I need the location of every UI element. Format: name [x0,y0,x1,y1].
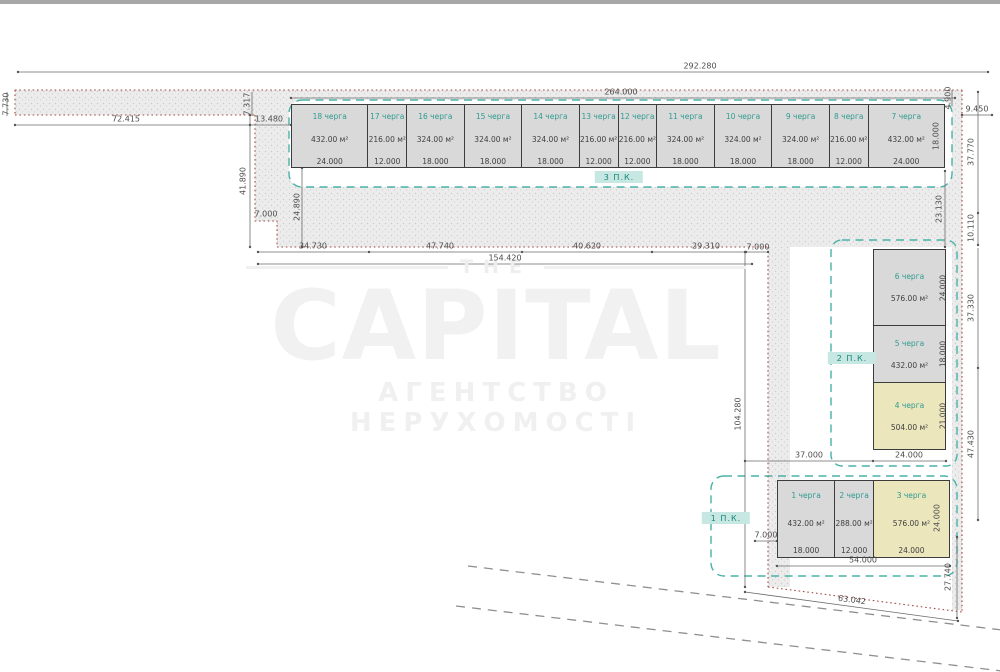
unit-cell: 9 черга324.00 м²18.000 [772,105,830,167]
unit-cell: 17 черга216.00 м²12.000 [368,105,407,167]
dim-label: 37.770 [967,138,976,166]
dim-label: 4.900 [944,87,953,110]
unit-name: 11 черга [668,112,702,121]
dim-label: 7.730 [2,93,11,116]
unit-name: 4 черга [895,401,925,410]
dim-label: 47.430 [967,430,976,458]
unit-cell: 15 черга324.00 м²18.000 [465,105,523,167]
unit-cell: 11 черга324.00 м²18.000 [657,105,715,167]
unit-cell: 14 черга324.00 м²18.000 [522,105,580,167]
unit-size: 12.000 [624,157,650,166]
dim-label: 41.890 [239,167,248,195]
unit-text-group: 5 черга432.00 м² [891,339,928,370]
unit-size: 12.000 [374,157,400,166]
stage-badge-3pk: 3 П.К. [595,171,643,183]
unit-name: 1 черга [791,491,821,500]
unit-area: 324.00 м² [417,135,454,144]
dim-label: 292.280 [683,62,716,71]
dim-label: 47.740 [426,242,454,251]
unit-name: 17 черга [370,112,404,121]
unit-size: 24.000 [317,157,343,166]
unit-size: 18.000 [672,157,698,166]
dim-label: 154.420 [488,254,521,263]
unit-name: 7 черга [892,112,922,121]
dim-label: 24.000 [895,451,923,460]
unit-name: 9 черга [786,112,816,121]
unit-size: 12.000 [586,157,612,166]
unit-name: 3 черга [897,491,927,500]
unit-text-group: 6 черга576.00 м² [891,272,928,303]
unit-area: 324.00 м² [474,135,511,144]
dim-label: 24.890 [293,193,302,221]
unit-cell: 10 черга324.00 м²18.000 [715,105,773,167]
unit-cell: 6 черга576.00 м²24.000 [874,250,945,326]
unit-name: 16 черга [418,112,452,121]
unit-cell: 5 черга432.00 м²18.000 [874,326,945,383]
unit-size: 18.000 [730,157,756,166]
unit-size: 24.000 [893,157,919,166]
unit-cell: 16 черга324.00 м²18.000 [407,105,465,167]
unit-area: 432.00 м² [891,361,928,370]
dim-label: 27.740 [944,563,953,591]
unit-name: 15 черга [476,112,510,121]
dim-label: 7.000 [255,210,278,219]
dim-label: 72.415 [112,115,140,124]
unit-name: 12 черга [620,112,654,121]
unit-cell: 1 черга432.00 м²18.000 [778,481,835,557]
unit-cell: 2 черга288.00 м²12.000 [835,481,874,557]
building-row-1pk: 1 черга432.00 м²18.0002 черга288.00 м²12… [777,480,950,558]
top-crop-strip [0,0,1000,4]
site-plan-canvas: THE CAPITAL АГЕНТСТВО НЕРУХОМОСТІ 18 чер… [0,0,1000,672]
dim-label: 34.730 [299,242,327,251]
road-dashed-lines [456,566,1000,671]
unit-area: 432.00 м² [788,519,825,528]
site-plan-drawing [0,0,1000,672]
unit-area: 504.00 м² [891,423,928,432]
dim-label: 10.110 [967,214,976,242]
unit-size: 18.000 [938,341,947,367]
dim-label: 7.000 [747,243,770,252]
unit-name: 13 черга [582,112,616,121]
unit-cell: 8 черга216.00 м²12.000 [830,105,869,167]
dim-label: 29.310 [692,242,720,251]
unit-size: 18.000 [480,157,506,166]
unit-name: 6 черга [895,272,925,281]
unit-area: 324.00 м² [782,135,819,144]
unit-size: 12.000 [836,157,862,166]
unit-area: 216.00 м² [619,135,656,144]
unit-name: 8 черга [834,112,864,121]
dim-label: 37.330 [967,294,976,322]
unit-area: 216.00 м² [580,135,617,144]
unit-name: 10 черга [726,112,760,121]
unit-cell: 12 черга216.00 м²12.000 [619,105,658,167]
unit-area: 324.00 м² [532,135,569,144]
unit-area: 432.00 м² [311,135,348,144]
unit-cell: 4 черга504.00 м²21.000 [874,383,945,449]
unit-name: 5 черга [895,339,925,348]
unit-area: 576.00 м² [891,294,928,303]
unit-area: 216.00 м² [369,135,406,144]
dim-label: 9.450 [966,105,989,114]
dim-label: 40.620 [573,242,601,251]
unit-text-group: 4 черга504.00 м² [891,401,928,432]
stage-badge-1pk: 1 П.К. [702,512,750,524]
dim-label: 264.000 [604,88,637,97]
unit-name: 18 черга [313,112,347,121]
dim-label: 24.000 [933,504,942,532]
dim-label: 7.000 [755,531,778,540]
dim-label: 54.000 [849,556,877,565]
unit-size: 18.000 [537,157,563,166]
unit-size: 12.000 [841,546,867,555]
unit-area: 216.00 м² [830,135,867,144]
dim-label: 23.130 [935,195,944,223]
unit-name: 14 черга [533,112,567,121]
unit-area: 324.00 м² [724,135,761,144]
dim-label: 13.480 [255,115,283,124]
dim-label: 37.000 [795,451,823,460]
unit-area: 324.00 м² [667,135,704,144]
unit-size: 18.000 [422,157,448,166]
unit-size: 18.000 [793,546,819,555]
unit-name: 2 черга [839,491,869,500]
unit-size: 21.000 [938,403,947,429]
unit-cell: 18 черга432.00 м²24.000 [292,105,368,167]
stage-badge-2pk: 2 П.К. [828,352,876,364]
unit-size: 24.000 [938,274,947,300]
dim-label: 104.280 [734,397,743,430]
building-column-2pk: 6 черга576.00 м²24.0005 черга432.00 м²18… [873,249,946,450]
dim-label: 7.317 [243,93,252,116]
building-row-3pk: 18 черга432.00 м²24.00017 черга216.00 м²… [291,104,945,168]
unit-area: 576.00 м² [893,519,930,528]
unit-size: 24.000 [898,546,924,555]
unit-area: 432.00 м² [888,135,925,144]
unit-size: 18.000 [787,157,813,166]
dim-label: 18.000 [932,122,941,150]
unit-cell: 13 черга216.00 м²12.000 [580,105,619,167]
unit-area: 288.00 м² [835,519,872,528]
